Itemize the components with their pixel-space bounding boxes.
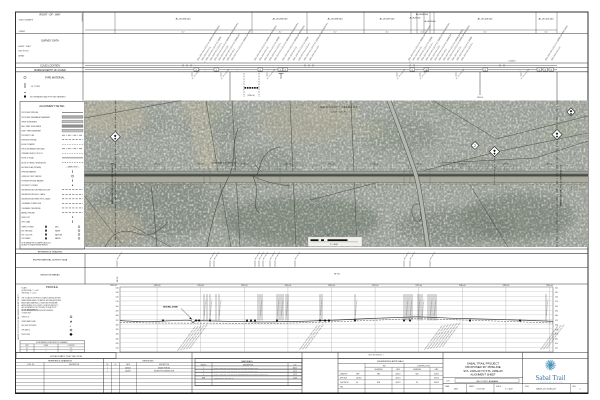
svg-text:ITEM NO.: ITEM NO. (200, 365, 207, 367)
svg-text:AL-LE-098.000: AL-LE-098.000 (416, 13, 428, 16)
svg-text:2017: 2017 (454, 389, 458, 391)
svg-text:47 of 340: 47 of 340 (477, 389, 485, 391)
svg-text:OPEN CUT: OPEN CUT (22, 316, 30, 318)
svg-text:1" = 600': 1" = 600' (330, 244, 338, 246)
svg-text:OWNER: OWNER (19, 31, 26, 33)
svg-text:530: 530 (116, 292, 119, 294)
svg-text:460: 460 (116, 324, 119, 326)
svg-text:KMK: KMK (415, 373, 418, 375)
svg-text:2475+00: 2475+00 (415, 285, 422, 287)
svg-text:DESCRIPTION: DESCRIPTION (243, 365, 253, 367)
svg-text:PROPOSED PIPELINE: PROPOSED PIPELINE (22, 112, 39, 114)
svg-text:1: 1 (579, 389, 580, 391)
svg-text:CHECKED BY: CHECKED BY (340, 382, 349, 384)
svg-text:36: 36 (279, 70, 281, 72)
svg-text:36: 36 (550, 70, 552, 72)
svg-text:AL-LE-095.000: AL-LE-095.000 (427, 119, 438, 122)
svg-text:490: 490 (555, 311, 558, 313)
svg-text:06/30/17: 06/30/17 (125, 367, 131, 369)
svg-text:2455+00: 2455+00 (241, 285, 248, 287)
svg-text:2475+00: 2475+00 (416, 163, 422, 165)
svg-text:QTY: QTY (294, 365, 297, 367)
svg-text:420: 420 (116, 343, 119, 345)
svg-text:AL-LE-095.000: AL-LE-095.000 (273, 17, 288, 20)
svg-text:470: 470 (555, 320, 558, 322)
svg-text:2470+00: 2470+00 (372, 285, 379, 287)
svg-text:36: 36 (411, 70, 413, 72)
svg-text:BY: BY (115, 364, 117, 366)
svg-text:SURVEY DATA: SURVEY DATA (41, 39, 59, 43)
svg-text:490: 490 (116, 311, 119, 313)
svg-text:REV.: REV. (573, 386, 577, 388)
svg-text:45.2: 45.2 (386, 31, 389, 33)
svg-text:MILE POST: MILE POST (22, 217, 31, 219)
svg-text:PROPOSED: PROPOSED (22, 334, 31, 336)
svg-text:600: 600 (327, 235, 330, 237)
svg-text:530: 530 (555, 292, 558, 294)
svg-text:(2436+00): (2436+00) (247, 95, 255, 97)
svg-text:06/30/17: 06/30/17 (434, 373, 439, 375)
svg-text:PROPERTY LINE: PROPERTY LINE (22, 135, 35, 137)
svg-text:MP 232: MP 232 (117, 276, 119, 282)
svg-text:05/02/17: 05/02/17 (434, 378, 439, 380)
svg-text:AL-LE-095.000: AL-LE-095.000 (256, 212, 267, 215)
svg-text:AGENT / TRACT: AGENT / TRACT (19, 45, 32, 48)
svg-text:MATCH LINE STA. 2436+00 (SEE S: MATCH LINE STA. 2436+00 (SEE SHEET 46) (111, 163, 114, 204)
svg-text:AL-LE-095.000: AL-LE-095.000 (451, 136, 462, 139)
svg-text:410: 410 (555, 348, 558, 350)
svg-text:PIPE MATERIAL: PIPE MATERIAL (45, 75, 65, 79)
svg-text:ISSUED FOR CONSTRUCTION: ISSUED FOR CONSTRUCTION (154, 371, 174, 373)
svg-text:+: + (268, 69, 269, 71)
svg-text:2455+00: 2455+00 (241, 163, 247, 165)
svg-text:HYDROSTATIC TEST SECTION: HYDROSTATIC TEST SECTION (50, 355, 82, 358)
svg-text:01/04/17: 01/04/17 (356, 378, 362, 380)
svg-text:540: 540 (555, 287, 558, 289)
svg-text:2485+00: 2485+00 (503, 285, 510, 287)
svg-text:1: 1 (205, 61, 206, 63)
svg-text:LOC:: LOC: (446, 381, 451, 383)
svg-text:04/28/17: 04/28/17 (125, 371, 131, 373)
svg-text:06/30/17: 06/30/17 (395, 382, 400, 384)
svg-text:06/30/17: 06/30/17 (395, 373, 400, 375)
svg-text:T-20-N • T-21-N: T-20-N • T-21-N (330, 111, 346, 113)
svg-text:REFERENCE DRAWINGS: REFERENCE DRAWINGS (48, 359, 72, 362)
svg-text:2465+00: 2465+00 (328, 285, 335, 287)
svg-text:DWG.: DWG. (525, 386, 530, 388)
svg-text:520: 520 (116, 297, 119, 299)
svg-text:1" = 600': 1" = 600' (505, 389, 513, 391)
svg-text:TRACT NUMBERS: TRACT NUMBERS (19, 19, 34, 22)
svg-text:05/02/17: 05/02/17 (395, 378, 400, 380)
svg-text:2445+00: 2445+00 (154, 285, 161, 287)
svg-text:410: 410 (116, 348, 119, 350)
svg-text:2445+00: 2445+00 (154, 163, 160, 165)
svg-text:AL-LE-102.000: AL-LE-102.000 (539, 17, 554, 20)
svg-text:PROPOSED 36" PIPELINE: PROPOSED 36" PIPELINE (465, 365, 500, 369)
svg-text:2450+00: 2450+00 (198, 163, 204, 165)
svg-text:420: 420 (555, 343, 558, 345)
svg-text:MP 232: MP 232 (334, 274, 340, 276)
svg-text:36: 36 (284, 70, 286, 72)
svg-text:+: + (520, 69, 521, 71)
svg-text:+: + (205, 69, 206, 71)
svg-text:EXISTING PIPELINE: EXISTING PIPELINE (22, 140, 37, 142)
svg-text:SENSITIVE AREAS: SENSITIVE AREAS (40, 274, 60, 277)
svg-text:SAT-PL-DO-70181-047 ALIGNMEN: SAT-PL-DO-70181-047 ALIGNMENT SHEET REV … (17, 293, 20, 340)
svg-text:ISSUED FOR BID: ISSUED FOR BID (158, 367, 171, 369)
svg-text:1: 1 (410, 61, 411, 63)
svg-text:REVISIONS: REVISIONS (143, 360, 155, 362)
svg-text:45.2: 45.2 (279, 31, 282, 33)
svg-text:AL-LE-095.000: AL-LE-095.000 (149, 211, 160, 214)
svg-text:AL-LE-097.000: AL-LE-097.000 (380, 17, 395, 20)
svg-text:WJ: WJ (416, 382, 418, 384)
svg-text:480: 480 (555, 315, 558, 317)
svg-text:36: 36 (538, 70, 540, 72)
svg-text:2: 2 (474, 144, 476, 148)
svg-text:ENGINEERING APPROVALS: ENGINEERING APPROVALS (377, 360, 404, 363)
svg-text:TREES / FOREST: TREES / FOREST (22, 227, 34, 229)
svg-text:36: 36 (195, 70, 197, 72)
svg-text:ALIGNMENT DETAIL: ALIGNMENT DETAIL (39, 104, 65, 108)
svg-text:510: 510 (116, 301, 119, 303)
svg-text:36: 36 (259, 70, 261, 72)
svg-text:2463+00: 2463+00 (477, 97, 483, 99)
svg-text:2480+00: 2480+00 (459, 163, 465, 165)
svg-text:REFERENCE DRAWING: REFERENCE DRAWING (38, 251, 63, 254)
svg-text:AL-LE-095.000: AL-LE-095.000 (506, 125, 517, 128)
svg-text:36: 36 (544, 70, 546, 72)
svg-text:480: 480 (116, 315, 119, 317)
svg-text:AL-LE-094.000: AL-LE-094.000 (176, 17, 191, 20)
svg-text:+: + (417, 69, 418, 71)
svg-text:COVER ONLY: COVER ONLY (22, 313, 32, 315)
svg-text:36: 36 (484, 70, 486, 72)
svg-text:2460+00: 2460+00 (285, 285, 292, 287)
svg-text:AL-LE-100.000: AL-LE-100.000 (478, 17, 493, 20)
svg-text:STA. 2436+00 TO STA. 2489+00: STA. 2436+00 TO STA. 2489+00 (463, 369, 503, 373)
svg-text:470: 470 (116, 320, 119, 322)
svg-text:2490+00: 2490+00 (546, 163, 552, 165)
svg-text:520: 520 (555, 297, 558, 299)
svg-text:2485+00: 2485+00 (503, 163, 509, 165)
svg-text:MILE POSTS: MILE POSTS (19, 51, 30, 53)
svg-text:2450+00: 2450+00 (197, 285, 204, 287)
svg-text:0.72: 0.72 (70, 348, 73, 350)
svg-text:SHEET:: SHEET: (469, 386, 475, 388)
svg-text:2470+00: 2470+00 (372, 163, 378, 165)
svg-text:440: 440 (116, 334, 119, 336)
svg-text:2460+00: 2460+00 (285, 163, 291, 165)
svg-text:430: 430 (116, 338, 119, 340)
svg-text:LEE COUNTY ALABAMA: LEE COUNTY ALABAMA (318, 105, 357, 109)
svg-text:UNDERGROUND DISTRIBUTION LINE: UNDERGROUND DISTRIBUTION LINE (22, 190, 50, 192)
svg-text:AL-LE-095.000: AL-LE-095.000 (163, 137, 174, 140)
svg-text:Sabal Trail: Sabal Trail (535, 375, 565, 382)
svg-text:45.2: 45.2 (545, 31, 548, 33)
svg-text:RIGHT - OF - WAY: RIGHT - OF - WAY (39, 13, 60, 16)
svg-text:+: + (237, 69, 238, 71)
svg-text:540: 540 (116, 287, 119, 289)
svg-text:2480+00: 2480+00 (459, 285, 466, 287)
svg-text:45.2: 45.2 (421, 31, 424, 33)
svg-text:AREAS: AREAS (19, 55, 26, 58)
svg-text:450: 450 (116, 329, 119, 331)
svg-text:LEE COUNTY, ALABAMA: LEE COUNTY, ALABAMA (476, 380, 498, 383)
svg-text:KMK: KMK (377, 373, 380, 375)
svg-text:500: 500 (555, 306, 558, 308)
svg-text:45.2: 45.2 (484, 31, 487, 33)
svg-text:TEST SECTION NO. 1: TEST SECTION NO. 1 (368, 354, 383, 356)
svg-text:GD: GD (356, 382, 358, 384)
svg-text:AL-LE-095.000: AL-LE-095.000 (357, 136, 368, 139)
svg-text:DESCRIPTION: DESCRIPTION (159, 364, 169, 366)
svg-text:MATCH LINE STA. 2489+00 (SEE S: MATCH LINE STA. 2489+00 (SEE SHEET 48) (560, 165, 563, 206)
svg-text:SAT-PL-DO-70181-047: SAT-PL-DO-70181-047 (536, 388, 556, 391)
svg-text:ENVIRONMENTAL SURVEY DATA: ENVIRONMENTAL SURVEY DATA (33, 259, 68, 262)
svg-text:2490+00: 2490+00 (546, 285, 553, 287)
svg-text:HDD MID CROSSING: HDD MID CROSSING (22, 325, 38, 327)
svg-text:2465+00: 2465+00 (328, 163, 334, 165)
svg-text:PROPERTY CORNER: PROPERTY CORNER (22, 185, 39, 187)
svg-text:510: 510 (555, 301, 558, 303)
svg-text:PROFILE: PROFILE (46, 285, 58, 289)
svg-text:45.2: 45.2 (334, 31, 337, 33)
svg-text:NATURAL DRAIN: NATURAL DRAIN (163, 305, 178, 308)
svg-text:36" CTWM: 36" CTWM (31, 86, 40, 88)
svg-text:MATERIALS: MATERIALS (241, 360, 253, 363)
svg-text:36: 36 (215, 70, 217, 72)
svg-text:500: 500 (116, 306, 119, 308)
svg-text:AL-LE-096.000: AL-LE-096.000 (328, 17, 343, 20)
svg-text:CLASS LOCATION: CLASS LOCATION (40, 65, 60, 68)
svg-text:ALIGNMENT SHEET: ALIGNMENT SHEET (470, 373, 496, 377)
svg-text:EST. OUTLOOK: EST. OUTLOOK (22, 234, 33, 236)
svg-text:06/30/17: 06/30/17 (434, 382, 439, 384)
svg-text:AL-LE-095.000: AL-LE-095.000 (261, 135, 272, 138)
svg-text:45.2: 45.2 (182, 31, 185, 33)
svg-text:WELL: WELL (55, 227, 59, 229)
